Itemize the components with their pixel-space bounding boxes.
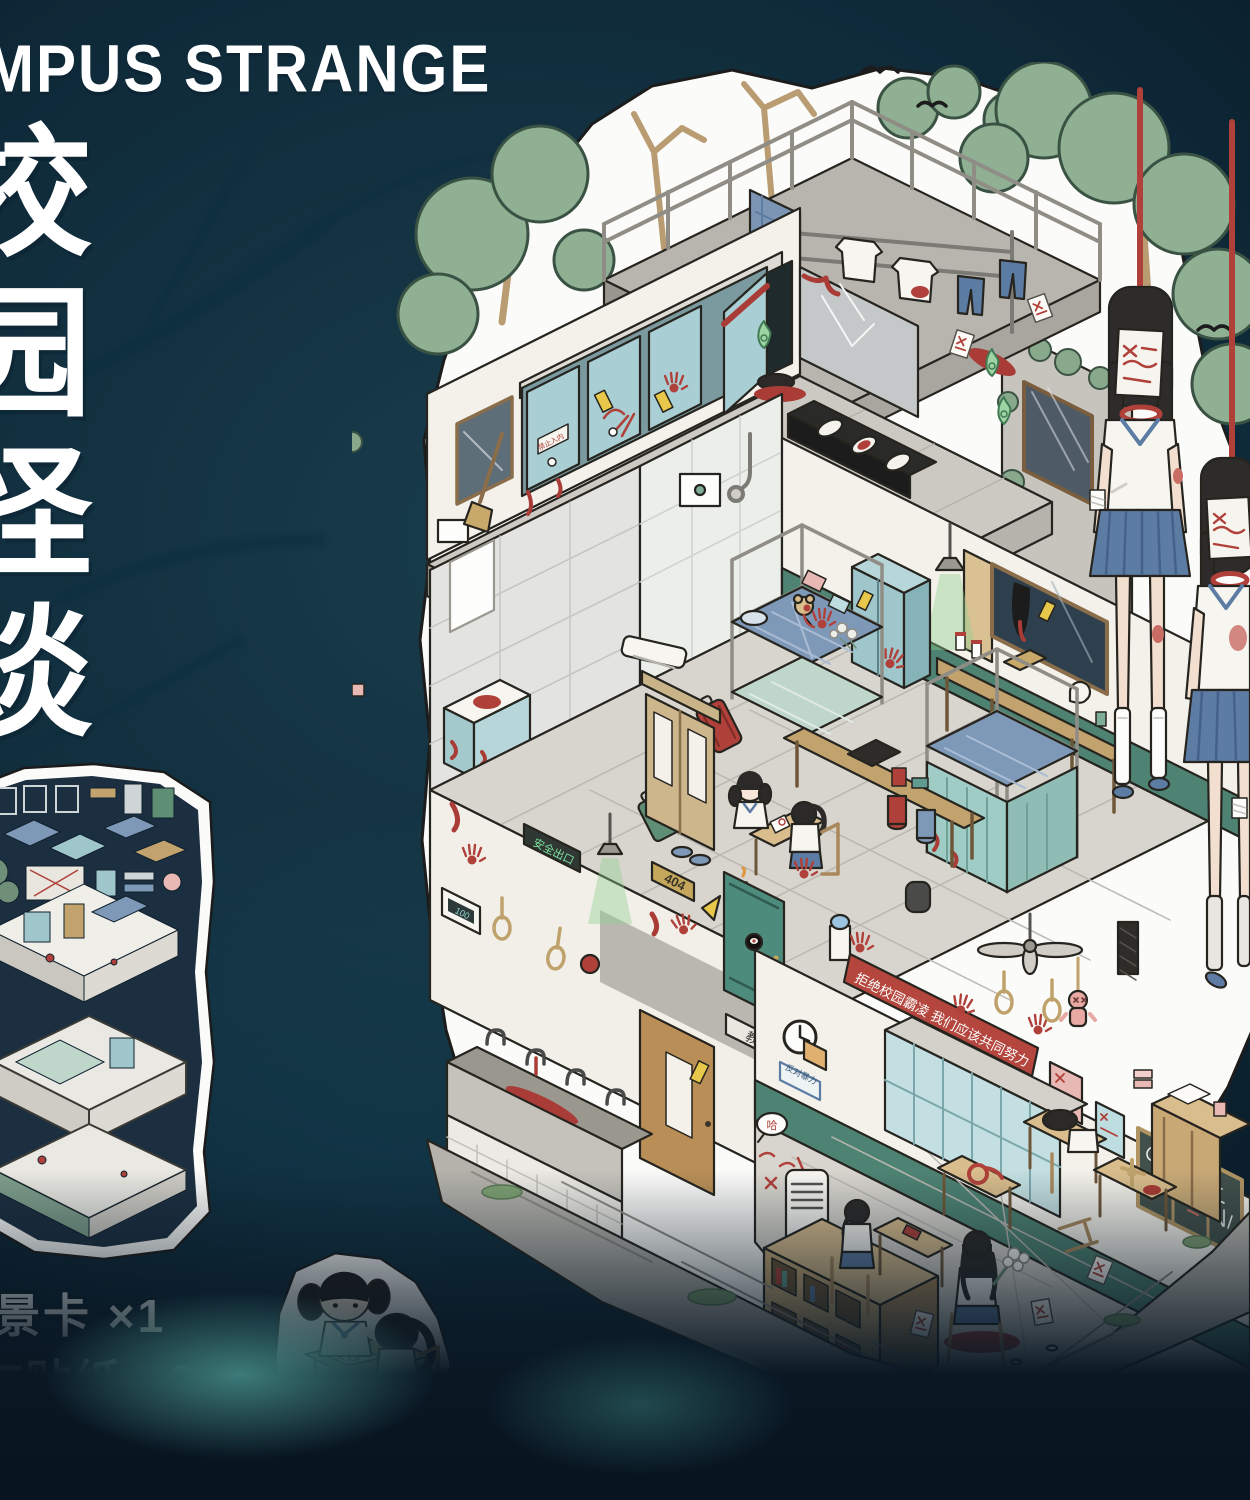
poster-root: MPUS STRANGE 校园怪谈	[0, 0, 1250, 1500]
contents-line-1: 景卡 ×1	[0, 1280, 166, 1346]
exam-paper-face-2	[1206, 497, 1250, 559]
contents-line-2: T贴纸 ×2	[0, 1346, 197, 1412]
contents-line-3: 景效果卡 ×1	[0, 1420, 264, 1486]
main-diorama-sticker: 禁止入内	[352, 62, 1250, 1412]
sticker-sheet-thumbnail	[0, 762, 219, 1262]
vertical-title: 校园怪谈	[0, 118, 78, 758]
girls-ritual-sticker	[265, 1246, 461, 1458]
graffiti-label: 哈	[767, 1119, 778, 1132]
red-ball-icon	[581, 955, 599, 973]
size-label: 尺寸： 29.2×20.6c	[795, 1412, 1250, 1477]
exam-paper-face	[1115, 329, 1163, 397]
